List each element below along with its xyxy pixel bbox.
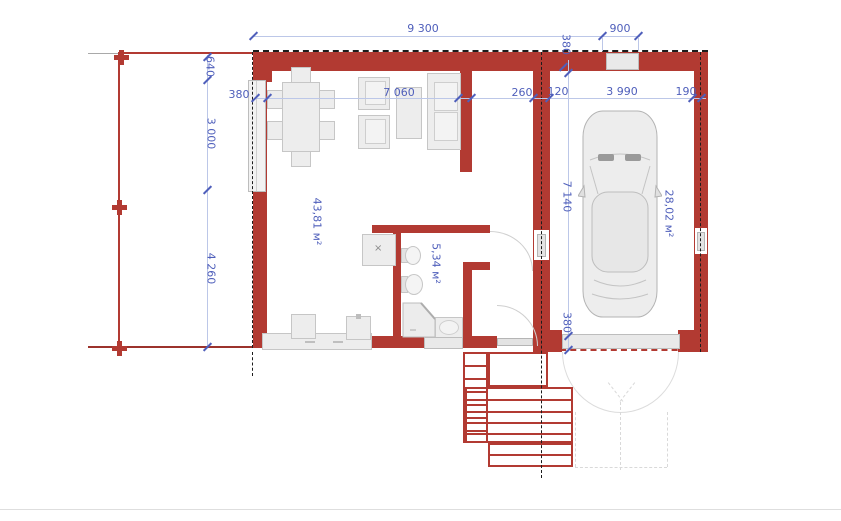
page-bottom-line [0, 509, 841, 510]
axis-line-garage-left [541, 52, 542, 478]
dining-chair [318, 90, 335, 109]
terrace-post-bottom [112, 341, 127, 356]
dim-label-7140: 7 140 [561, 167, 574, 227]
dim-ext-900-left [602, 38, 603, 51]
dim-label-900: 900 [598, 22, 642, 35]
appliance-cross-mark: × [374, 243, 382, 254]
dim-line-left [207, 55, 208, 348]
dim-label-380-garage-top: 380 [560, 15, 573, 75]
stairs-main-flight [465, 387, 573, 443]
driveway-dash-bottom [575, 467, 667, 468]
door-entrance [497, 336, 533, 348]
dim-label-3000: 3 000 [205, 104, 218, 164]
terrace-post-middle [112, 200, 127, 215]
car-top-view [578, 108, 662, 320]
dim-ext-900-right [638, 38, 639, 51]
wall-bathroom-right [463, 270, 472, 336]
dim-label-4260: 4 260 [205, 239, 218, 299]
driveway-dash-left [575, 412, 576, 467]
dim-label-3990: 3 990 [592, 85, 652, 98]
driveway-dash-right [667, 412, 668, 467]
bathroom-sink-counter [435, 317, 463, 339]
garage-threshold-dashed [550, 349, 708, 351]
area-label-garage: 28,02 м² [663, 183, 676, 245]
bidet-bowl [405, 246, 421, 265]
dining-table [282, 82, 320, 152]
dim-label-380-garage-bottom: 380 [561, 293, 574, 353]
window-bathroom [424, 337, 463, 349]
toilet-bowl [405, 274, 423, 295]
area-label-bathroom: 5,34 м² [430, 233, 443, 295]
dim-line-row2 [257, 98, 706, 99]
dim-label-640: 640 [204, 37, 217, 97]
garage-door [562, 334, 680, 349]
dim-label-260: 260 [504, 86, 540, 99]
stairs-landing [488, 352, 548, 387]
shower-corner [402, 302, 436, 338]
drive-arrow-shaft [620, 402, 621, 470]
dim-label-7060: 7 060 [369, 86, 429, 99]
window-garage-top [606, 53, 639, 70]
sofa [427, 73, 461, 150]
wall-top [253, 52, 708, 71]
dining-chair [291, 150, 311, 167]
kitchen-appliance-sink [346, 316, 371, 340]
dim-label-380-left: 380 [225, 88, 253, 101]
dim-line-top [253, 36, 640, 37]
stairs-lower-steps [488, 443, 573, 467]
wall-bathroom-stub [463, 262, 490, 270]
axis-line-top-wall [253, 50, 708, 52]
armchair-2 [358, 115, 390, 149]
window-garage-right [695, 228, 707, 254]
dim-label-9300: 9 300 [393, 22, 453, 35]
floor-plan: × [0, 0, 841, 521]
dim-label-190: 190 [668, 85, 704, 98]
garage-door-swing-right [620, 352, 679, 413]
dim-label-120: 120 [540, 85, 576, 98]
axis-line-left-wall-ext [252, 352, 253, 376]
wall-hallway [460, 66, 472, 172]
kitchen-appliance-stove [291, 314, 316, 339]
area-label-living-room: 43,81 м² [311, 191, 324, 253]
door-arc-bathroom [490, 231, 533, 271]
dining-chair [318, 121, 335, 140]
terrace-post-top [114, 50, 129, 65]
terrace-top-edge [118, 52, 255, 54]
